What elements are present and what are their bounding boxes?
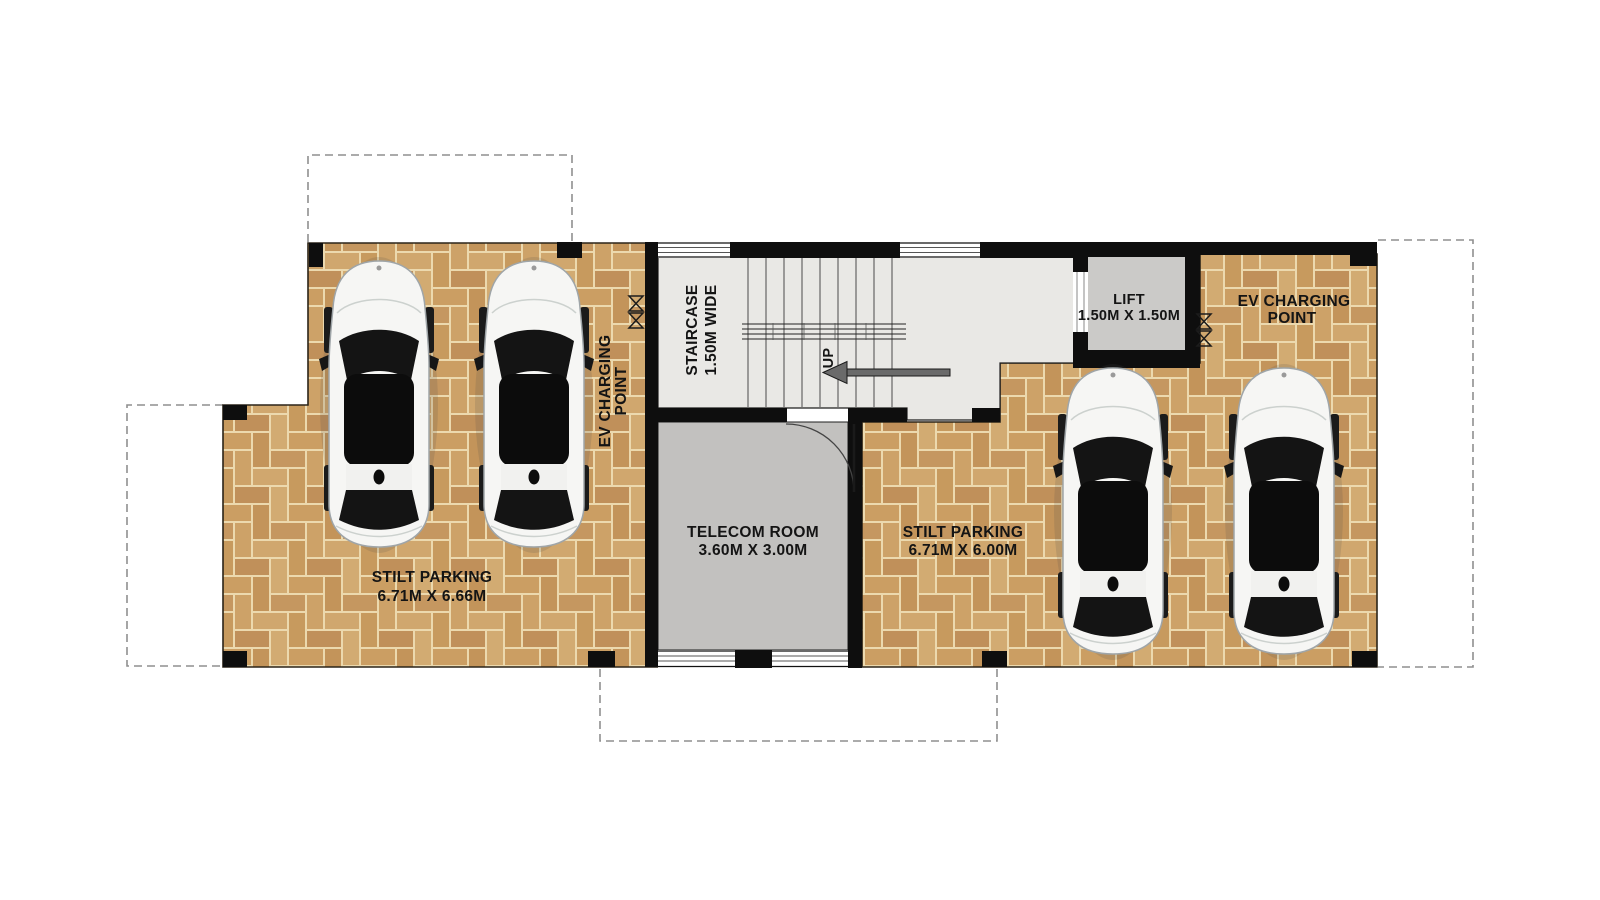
car-left-2 (474, 257, 594, 553)
car-right-1 (1053, 364, 1173, 660)
label-telecom-2: 3.60M X 3.00M (698, 542, 807, 559)
wall-stair-bottom-left (645, 408, 787, 422)
label-staircase-2: 1.50M WIDE (703, 285, 720, 376)
car-left-1 (319, 257, 439, 553)
wall-center-divider (645, 242, 658, 667)
label-stilt-parking-left-2: 6.71M X 6.66M (377, 588, 486, 605)
wall-stair-bottom-right (848, 408, 907, 422)
stilt-parking-floor-plan: STILT PARKING 6.71M X 6.66M TELECOM ROOM… (0, 0, 1600, 900)
label-ev-right-2: POINT (1268, 310, 1317, 327)
window-stair-top (658, 242, 730, 258)
label-stilt-parking-right-2: 6.71M X 6.00M (908, 542, 1017, 559)
label-ev-left-2: POINT (613, 366, 630, 415)
floor-plan-page: STILT PARKING 6.71M X 6.66M TELECOM ROOM… (0, 0, 1600, 900)
window-telecom-bottom-right (772, 650, 848, 668)
label-ev-left-1: EV CHARGING (597, 335, 614, 448)
wall-top-landing (980, 242, 1075, 258)
window-pier (735, 650, 772, 668)
label-ev-right-1: EV CHARGING (1238, 293, 1351, 310)
label-telecom-1: TELECOM ROOM (687, 524, 819, 541)
window-telecom-bottom-left (658, 650, 735, 668)
label-staircase-1: STAIRCASE (684, 284, 701, 375)
label-stilt-parking-right-1: STILT PARKING (903, 524, 1023, 541)
window-landing-top (900, 242, 980, 258)
label-lift-2: 1.50M X 1.50M (1078, 308, 1180, 324)
label-up: UP (821, 348, 837, 369)
car-right-2 (1224, 364, 1344, 660)
label-stilt-parking-left-1: STILT PARKING (372, 569, 492, 586)
label-lift-1: LIFT (1113, 292, 1145, 308)
wall-top-mid (730, 242, 900, 258)
